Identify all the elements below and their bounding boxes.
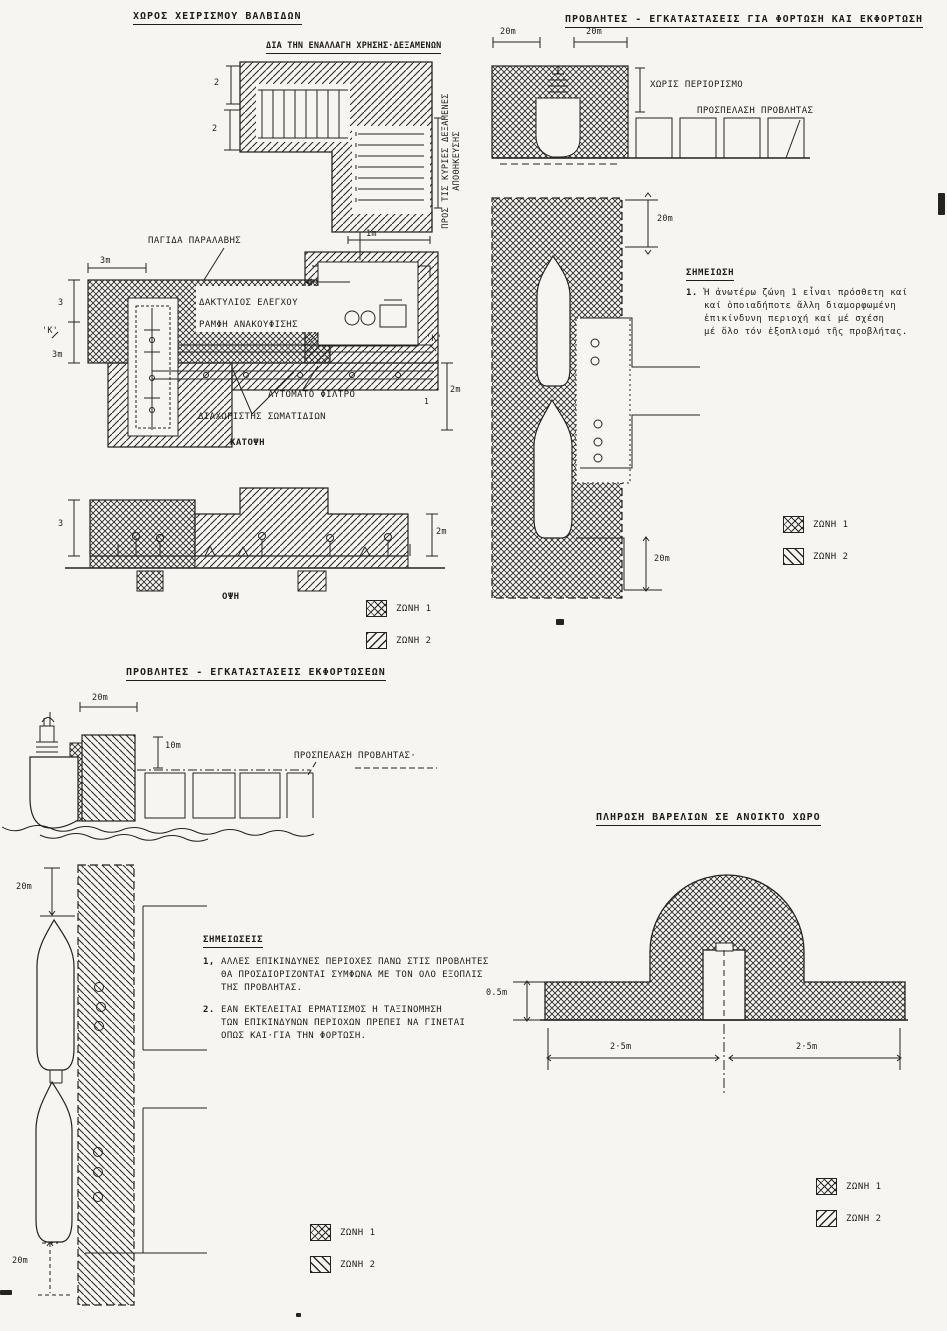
legend-valve-area: ΖΩΝΗ 1 ΖΩΝΗ 2: [366, 600, 432, 649]
plan-caption: ΚΑΤΟΨΗ: [230, 438, 265, 449]
dim-label: 3: [58, 298, 63, 309]
section-mark-left: 'Κ': [42, 326, 58, 337]
zone2-swatch: [816, 1210, 837, 1227]
note-number: 2.: [203, 1004, 215, 1017]
dim-label: 2m: [450, 385, 461, 396]
legend-item-zone1: ΖΩΝΗ 1: [366, 600, 432, 617]
zone2-label: ΖΩΝΗ 2: [846, 1214, 882, 1224]
dim-label: 10m: [165, 741, 181, 752]
note-body: Ἡ ἀνωτέρω ζώνη 1 εἶναι πρόσθετη καί καί …: [704, 287, 944, 339]
zone2-label: ΖΩΝΗ 2: [396, 636, 432, 646]
dim-label: 20m: [654, 554, 670, 565]
relief-nozzles-label: ΡΑΜΦΗ ΑΝΑΚΟΥΦΙΣΗΣ: [199, 320, 298, 330]
barrel-filling-diagram: [513, 875, 908, 1095]
zone1-label: ΖΩΝΗ 1: [846, 1182, 882, 1192]
legend-unloading-pier: ΖΩΝΗ 1 ΖΩΝΗ 2: [310, 1224, 376, 1273]
dim-label: 2·5m: [796, 1042, 817, 1053]
zone1-swatch: [366, 600, 387, 617]
valve-elevation-view: [65, 488, 445, 591]
zone1-label: ΖΩΝΗ 1: [396, 604, 432, 614]
loading-pier-elevation: [492, 37, 810, 164]
zone1-swatch: [816, 1178, 837, 1195]
dim-label: 20m: [500, 27, 516, 38]
zone2-swatch: [366, 632, 387, 649]
to-storage-tanks-label: ΠΡΟΣ ΤΙΣ ΚΥΡΙΕΣ ΔΕΞΑΜΕΝΕΣ ΑΠΟΘΗΚΕΥΣΗΣ: [441, 81, 463, 241]
dim-label: 20m: [657, 214, 673, 225]
scan-artifact: [0, 1290, 12, 1295]
scanned-technical-sheet: ΧΩΡΟΣ ΧΕΙΡΙΣΜΟΥ ΒΑΛΒΙΔΩΝ ΔΙΑ ΤΗΝ ΕΝΑΛΛΑΓ…: [0, 0, 947, 1331]
loading-piers-title: ΠΡΟΒΛΗΤΕΣ - ΕΓΚΑΤΑΣΤΑΣΕΙΣ ΓΙΑ ΦΟΡΤΩΣΗ ΚΑ…: [565, 14, 923, 28]
receiving-trap-label: ΠΑΓΙΔΑ ΠΑΡΑΛΑΒΗΣ: [148, 236, 241, 247]
auto-filter-label: ΑΥΤΟΜΑΤΟ ΦΙΛΤΡΟ: [268, 390, 355, 401]
valve-area-title: ΧΩΡΟΣ ΧΕΙΡΙΣΜΟΥ ΒΑΛΒΙΔΩΝ: [133, 11, 302, 25]
dim-label: 2: [214, 78, 219, 89]
no-restriction-label: ΧΩΡΙΣ ΠΕΡΙΟΡΙΣΜΟ: [650, 80, 743, 91]
loading-pier-plan: [492, 193, 700, 598]
legend-item-zone1: ΖΩΝΗ 1: [783, 516, 849, 533]
dim-label: 20m: [12, 1256, 28, 1267]
zone1-swatch: [783, 516, 804, 533]
dim-label: 20m: [92, 693, 108, 704]
dim-label: 20m: [16, 882, 32, 893]
zone2-label: ΖΩΝΗ 2: [340, 1260, 376, 1270]
legend-item-zone1: ΖΩΝΗ 1: [310, 1224, 376, 1241]
particle-separator-label: ΔΙΑΧΩΡΙΣΤΗΣ ΣΩΜΑΤΙΔΙΩΝ: [198, 412, 326, 423]
control-ring-label: ΔΑΚΤΥΛΙΟΣ ΕΛΕΓΧΟΥ: [199, 298, 298, 308]
legend-item-zone2: ΖΩΝΗ 2: [783, 548, 849, 565]
elevation-caption: ΟΨΗ: [222, 592, 239, 603]
section-mark-right: 'Κ': [426, 334, 442, 345]
tank-alternation-label: ΔΙΑ ΤΗΝ ΕΝΑΛΛΑΓΗ ΧΡΗΣΗΣ·ΔΕΞΑΜΕΝΩΝ: [266, 41, 441, 54]
zone1-swatch: [310, 1224, 331, 1241]
pier-access-label: ΠΡΟΣΠΕΛΑΣΗ ΠΡΟΒΛΗΤΑΣ: [697, 106, 813, 117]
zone2-swatch: [310, 1256, 331, 1273]
legend-loading-pier: ΖΩΝΗ 1 ΖΩΝΗ 2: [783, 516, 849, 565]
dim-label: 1m: [366, 229, 377, 240]
unloading-piers-title: ΠΡΟΒΛΗΤΕΣ - ΕΓΚΑΤΑΣΤΑΣΕΙΣ ΕΚΦΟΡΤΩΣΕΩΝ: [126, 667, 386, 681]
note-number: 1,: [203, 956, 215, 969]
zone1-label: ΖΩΝΗ 1: [340, 1228, 376, 1238]
scan-artifact: [556, 619, 564, 625]
note-body: ΕΑΝ ΕΚΤΕΛΕΙΤΑΙ ΕΡΜΑΤΙΣΜΟΣ Η ΤΑΞΙΝΟΜΗΣΗ Τ…: [221, 1004, 551, 1043]
legend-item-zone2: ΖΩΝΗ 2: [366, 632, 432, 649]
dim-label: 2: [212, 124, 217, 135]
zone1-label: ΖΩΝΗ 1: [813, 520, 849, 530]
legend-item-zone1: ΖΩΝΗ 1: [816, 1178, 882, 1195]
dim-label: 0.5m: [486, 988, 507, 999]
zone2-swatch: [783, 548, 804, 565]
dim-label: 3: [58, 519, 63, 530]
dim-label: 3m: [52, 350, 63, 361]
note-heading: ΣΗΜΕΙΩΣΗ: [686, 268, 734, 281]
control-ring-relief-label: ΔΑΚΤΥΛΙΟΣ ΕΛΕΓΧΟΥ ΡΑΜΦΗ ΑΝΑΚΟΥΦΙΣΗΣ: [196, 286, 320, 332]
note-number: 1.: [686, 287, 698, 300]
dim-label: 20m: [586, 27, 602, 38]
dim-label: 1: [424, 396, 429, 407]
valve-manifold-diagram: [224, 62, 442, 278]
zone2-label: ΖΩΝΗ 2: [813, 552, 849, 562]
unloading-pier-elevation: [2, 702, 437, 841]
diagram-linework: [0, 0, 947, 1331]
dim-label: 3m: [100, 256, 111, 267]
scan-artifact: [296, 1313, 301, 1317]
legend-barrel-filling: ΖΩΝΗ 1 ΖΩΝΗ 2: [816, 1178, 882, 1227]
notes-heading: ΣΗΜΕΙΩΣΕΙΣ: [203, 935, 263, 948]
dim-label: 2m: [436, 527, 447, 538]
legend-item-zone2: ΖΩΝΗ 2: [310, 1256, 376, 1273]
pier-access-label: ΠΡΟΣΠΕΛΑΣΗ ΠΡΟΒΛΗΤΑΣ·: [294, 751, 416, 762]
dim-label: 2·5m: [610, 1042, 631, 1053]
barrel-filling-title: ΠΛΗΡΩΣΗ ΒΑΡΕΛΙΩΝ ΣΕ ΑΝΟΙΚΤΟ ΧΩΡΟ: [596, 812, 821, 826]
scan-artifact: [938, 193, 945, 215]
unloading-pier-plan: [36, 865, 207, 1305]
legend-item-zone2: ΖΩΝΗ 2: [816, 1210, 882, 1227]
